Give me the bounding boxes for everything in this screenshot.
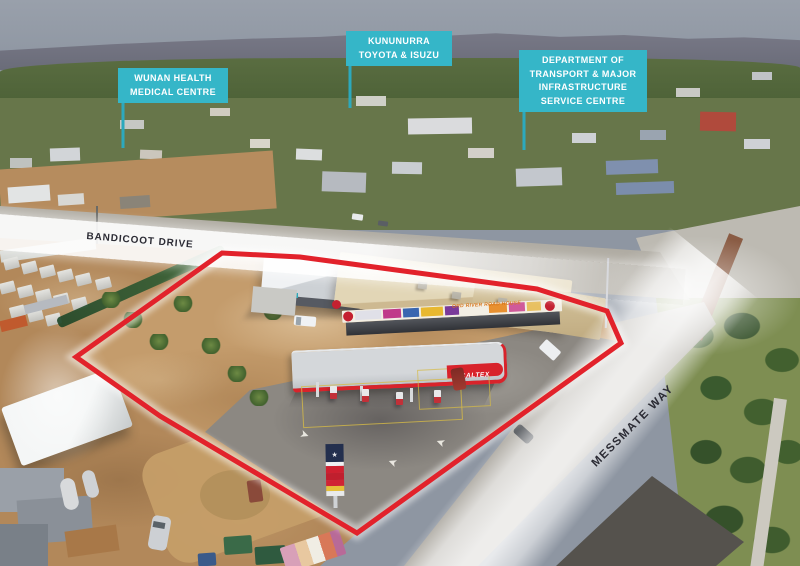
callout-wunan-health: WUNAN HEALTH MEDICAL CENTRE: [118, 68, 228, 103]
callout-dept-transport: DEPARTMENT OF TRANSPORT & MAJOR INFRASTR…: [519, 50, 647, 112]
boundary-glow: [76, 253, 621, 533]
aerial-property-photo: ORD RIVER ROAD HOUSE CALTEX ★ ➤ ➤ ➤ BAND…: [0, 0, 800, 566]
callout-kununurra-toyota: KUNUNURRA TOYOTA & ISUZU: [346, 31, 452, 66]
